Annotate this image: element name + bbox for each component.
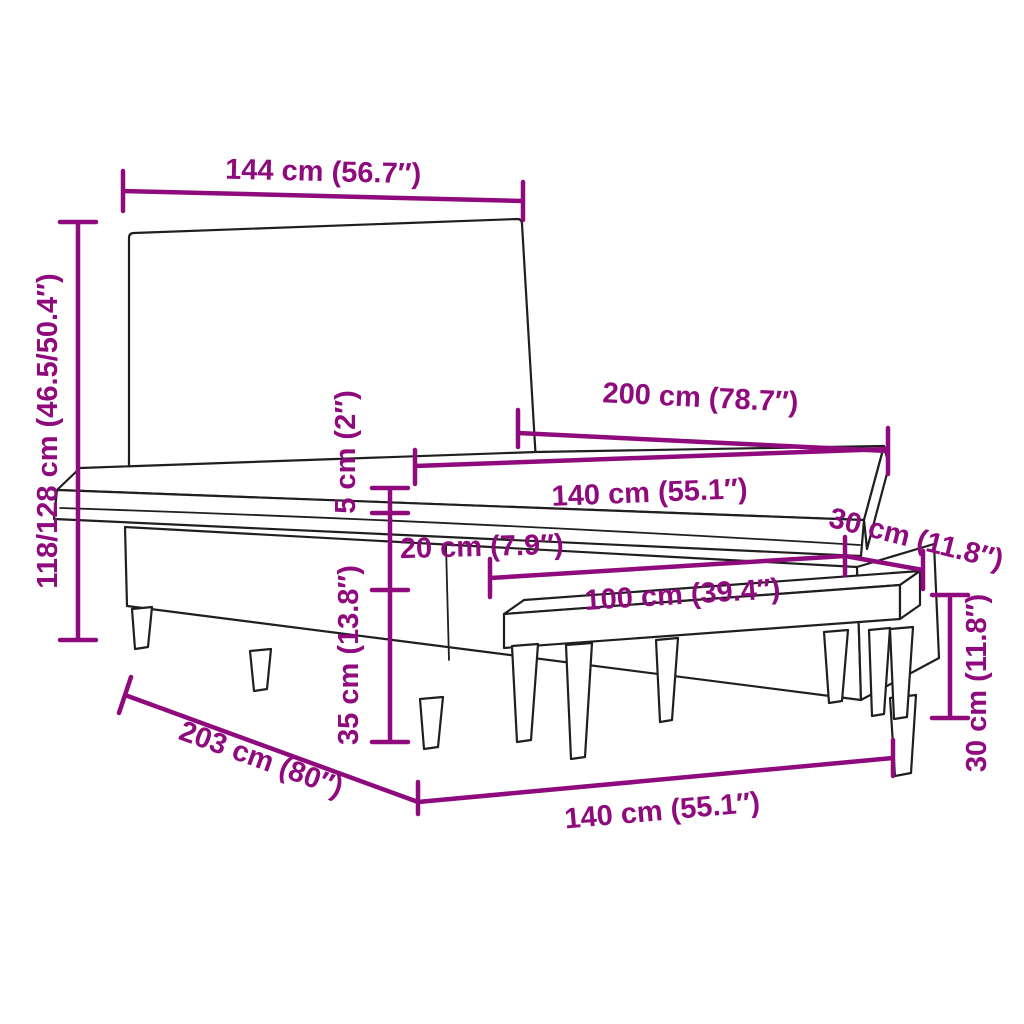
- dim-bench-height-label: 30 cm (11.8″): [961, 594, 993, 772]
- bed-leg: [132, 607, 152, 649]
- dim-bench-height: 30 cm (11.8″): [932, 594, 993, 772]
- bed-illustration: [54, 219, 939, 776]
- dim-frame-width-line: [418, 740, 893, 802]
- bench-leg: [656, 638, 678, 722]
- dim-base-height-label: 35 cm (13.8″): [333, 565, 365, 745]
- dim-total-height-line: [60, 222, 96, 640]
- bed-dimensions-drawing: 144 cm (56.7″) 118/128 cm (46.5/50.4″) 2…: [0, 0, 1024, 1024]
- bench-leg: [512, 644, 538, 742]
- dim-headboard-width-label: 144 cm (56.7″): [225, 154, 422, 191]
- dim-frame-length-label: 203 cm (80″): [175, 715, 347, 804]
- dim-frame-width-label: 140 cm (55.1″): [563, 787, 761, 836]
- bench-leg: [566, 643, 592, 759]
- dim-total-height: 118/128 cm (46.5/50.4″): [32, 222, 96, 640]
- bed-leg: [420, 697, 443, 749]
- dim-frame-length: 203 cm (80″): [119, 677, 418, 814]
- dim-topper-thickness-label: 5 cm (2″): [330, 390, 362, 514]
- bench-leg: [869, 628, 890, 716]
- dim-bed-length-label: 200 cm (78.7″): [602, 377, 799, 419]
- dim-mattress-thickness-label: 20 cm (7.9″): [399, 529, 564, 565]
- dimension-diagram: 144 cm (56.7″) 118/128 cm (46.5/50.4″) 2…: [0, 0, 1024, 1024]
- dim-total-height-label: 118/128 cm (46.5/50.4″): [32, 273, 64, 588]
- bed-leg: [250, 649, 271, 691]
- dim-headboard-width: 144 cm (56.7″): [123, 154, 523, 220]
- dim-frame-width: 140 cm (55.1″): [418, 740, 893, 836]
